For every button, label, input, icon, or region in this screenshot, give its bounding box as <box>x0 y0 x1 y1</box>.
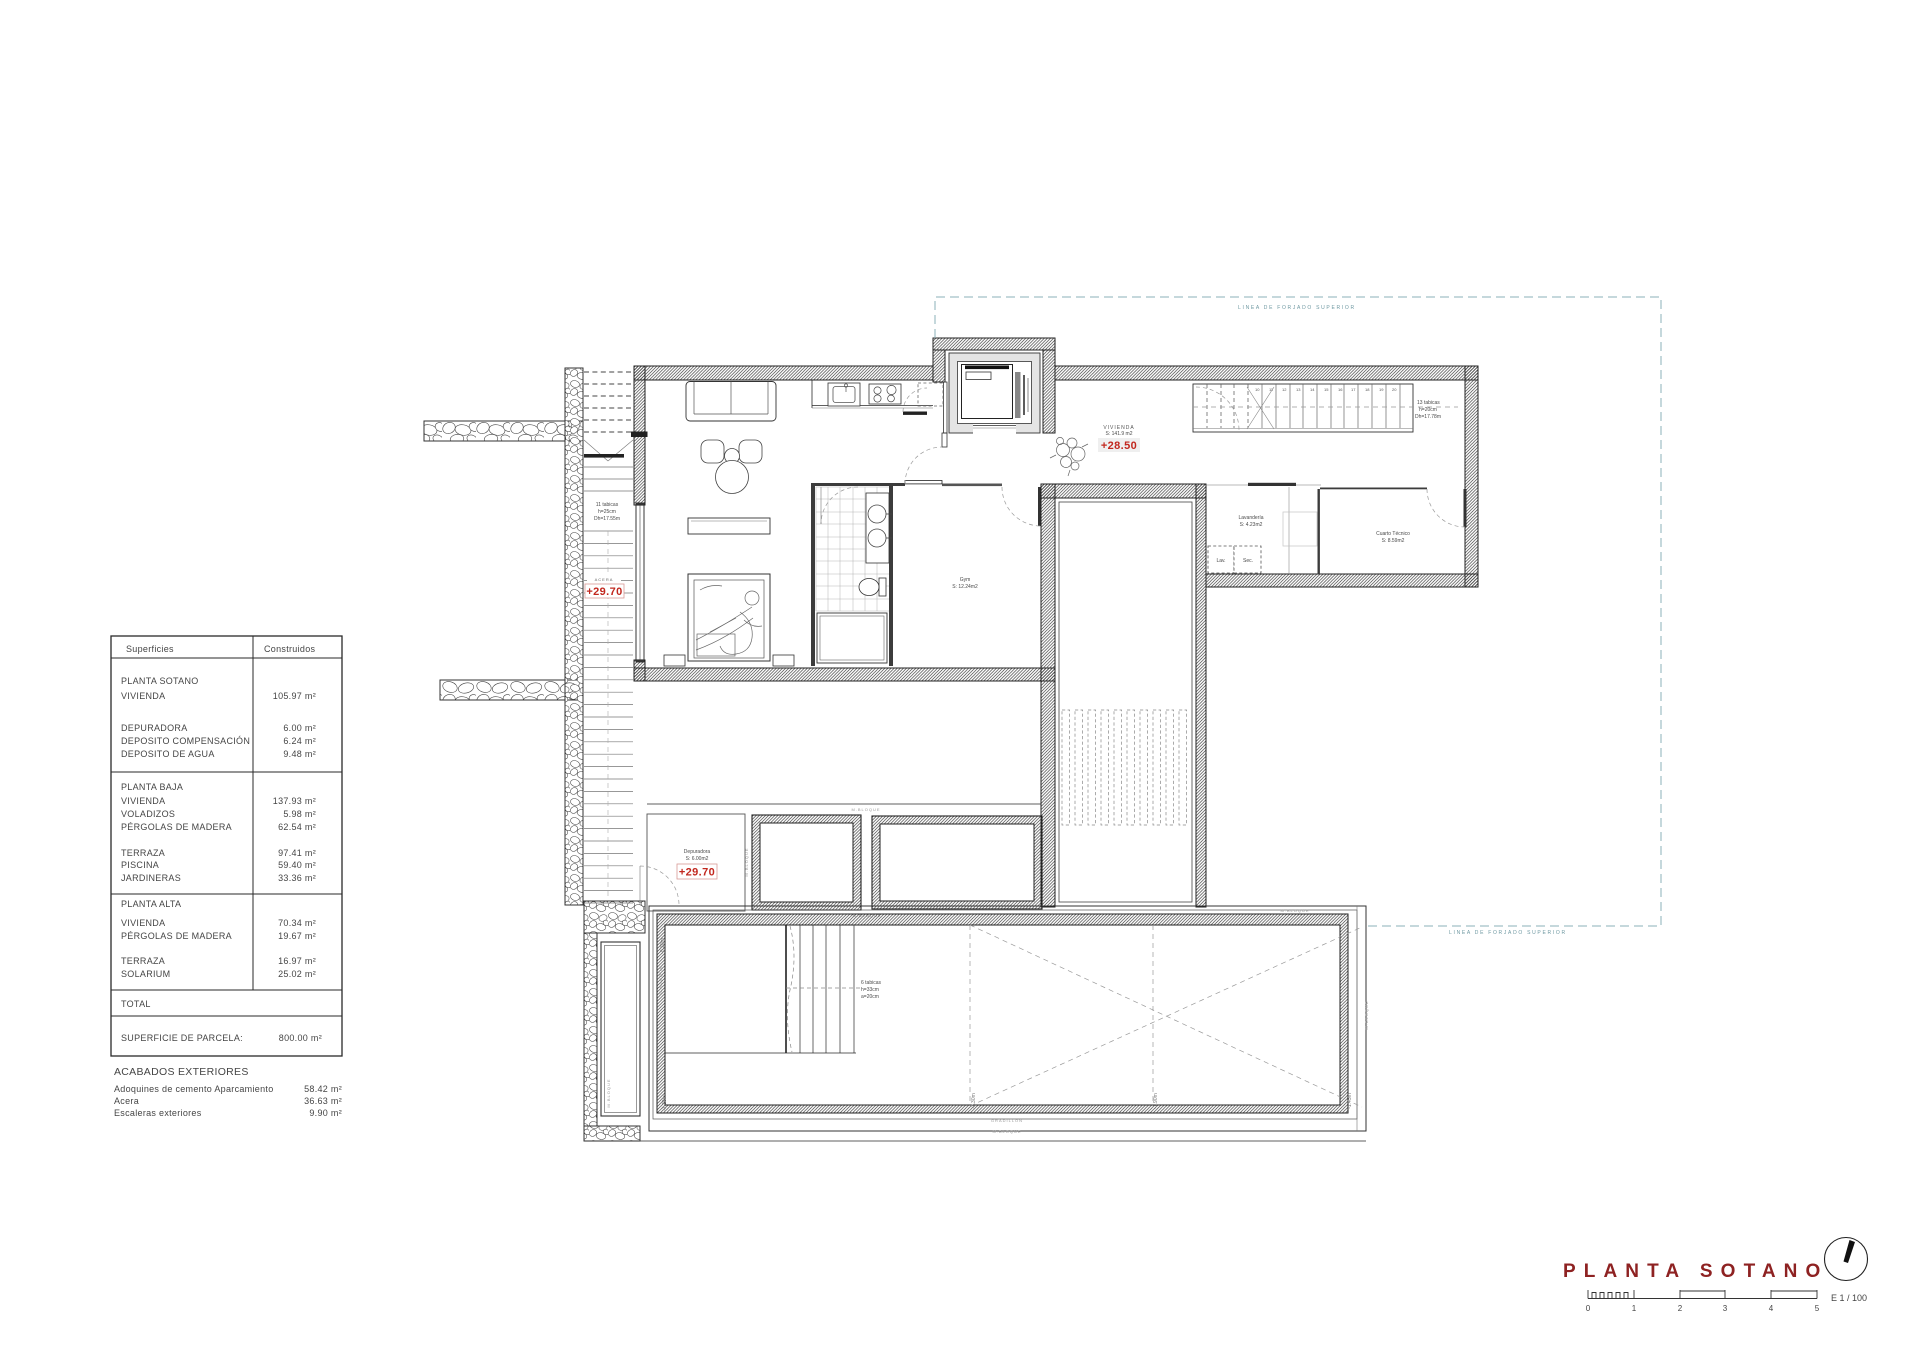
svg-text:-1.45m: -1.45m <box>1347 1093 1353 1109</box>
svg-text:15: 15 <box>1324 387 1329 392</box>
svg-text:LINEA DE FORJADO SUPERIOR: LINEA DE FORJADO SUPERIOR <box>1238 305 1356 311</box>
svg-text:Gym: Gym <box>960 577 971 583</box>
svg-text:+28.50: +28.50 <box>1101 440 1137 452</box>
svg-text:13 tabicas: 13 tabicas <box>1417 400 1440 406</box>
svg-text:S: 4.23m2: S: 4.23m2 <box>1240 522 1263 528</box>
svg-text:PLANTA SOTANO: PLANTA SOTANO <box>121 676 199 686</box>
svg-text:SUPERFICIE DE PARCELA:: SUPERFICIE DE PARCELA: <box>121 1033 243 1043</box>
svg-text:10: 10 <box>1255 387 1260 392</box>
svg-text:VIVIENDA: VIVIENDA <box>121 918 165 928</box>
svg-text:Dh=17.55m: Dh=17.55m <box>594 516 620 522</box>
svg-text:JARDINERAS: JARDINERAS <box>121 873 181 883</box>
svg-text:Lav.: Lav. <box>1216 558 1225 564</box>
svg-text:TERRAZA: TERRAZA <box>121 956 165 966</box>
svg-text:-1.20m: -1.20m <box>662 1095 668 1111</box>
svg-text:-1.90m: -1.90m <box>1153 1093 1159 1109</box>
svg-text:18: 18 <box>1365 387 1370 392</box>
svg-text:105.97 m²: 105.97 m² <box>273 691 316 701</box>
svg-text:62.54 m²: 62.54 m² <box>278 822 316 832</box>
svg-text:Dh=17.78m: Dh=17.78m <box>1415 414 1441 420</box>
svg-text:Lavandería: Lavandería <box>1238 515 1263 521</box>
svg-text:PLANTA ALTA: PLANTA ALTA <box>121 899 181 909</box>
svg-text:6.24 m²: 6.24 m² <box>283 736 316 746</box>
svg-text:137.93 m²: 137.93 m² <box>273 796 316 806</box>
svg-text:19: 19 <box>1379 387 1384 392</box>
svg-text:3: 3 <box>1723 1304 1728 1313</box>
svg-text:Depuradora: Depuradora <box>684 849 711 855</box>
svg-text:25.02 m²: 25.02 m² <box>278 969 316 979</box>
svg-text:ACERA: ACERA <box>595 577 614 582</box>
svg-text:PISCINA: PISCINA <box>121 860 159 870</box>
svg-text:ACABADOS EXTERIORES: ACABADOS EXTERIORES <box>114 1066 249 1078</box>
svg-text:16.97 m²: 16.97 m² <box>278 956 316 966</box>
svg-text:6 tabicas: 6 tabicas <box>861 980 882 986</box>
svg-text:Escaleras exteriores: Escaleras exteriores <box>114 1108 202 1118</box>
svg-text:PLANTA BAJA: PLANTA BAJA <box>121 782 183 792</box>
svg-text:PÉRGOLAS DE MADERA: PÉRGOLAS DE MADERA <box>121 822 232 832</box>
svg-text:36.63 m²: 36.63 m² <box>304 1096 342 1106</box>
svg-text:9.48 m²: 9.48 m² <box>283 749 316 759</box>
svg-text:M.BLOQUE: M.BLOQUE <box>851 807 880 812</box>
svg-text:33.36 m²: 33.36 m² <box>278 873 316 883</box>
svg-text:E 1 / 100: E 1 / 100 <box>1831 1293 1867 1303</box>
svg-text:5: 5 <box>1815 1304 1820 1313</box>
svg-text:h=20cm: h=20cm <box>1419 407 1437 413</box>
svg-text:9.90 m²: 9.90 m² <box>309 1108 342 1118</box>
svg-text:Sec.: Sec. <box>1243 558 1253 564</box>
svg-text:14: 14 <box>1310 387 1315 392</box>
svg-text:58.42 m²: 58.42 m² <box>304 1084 342 1094</box>
svg-text:S: 6.00m2: S: 6.00m2 <box>686 856 709 862</box>
svg-text:-0.30m: -0.30m <box>660 938 666 954</box>
svg-text:M.BLOQUE: M.BLOQUE <box>606 1078 611 1107</box>
svg-text:Construidos: Construidos <box>264 644 316 654</box>
svg-text:2: 2 <box>1678 1304 1683 1313</box>
svg-text:0: 0 <box>1586 1304 1591 1313</box>
svg-text:6.00 m²: 6.00 m² <box>283 723 316 733</box>
svg-text:GRADILLON: GRADILLON <box>991 1118 1023 1123</box>
svg-text:800.00 m²: 800.00 m² <box>279 1033 322 1043</box>
svg-text:19.67 m²: 19.67 m² <box>278 931 316 941</box>
svg-text:1: 1 <box>1632 1304 1637 1313</box>
svg-text:VIVIENDA: VIVIENDA <box>121 796 165 806</box>
svg-text:+29.70: +29.70 <box>679 867 715 879</box>
svg-text:h=25cm: h=25cm <box>598 509 616 515</box>
svg-text:S: 8.59m2: S: 8.59m2 <box>1382 538 1405 544</box>
svg-text:13: 13 <box>1296 387 1301 392</box>
svg-text:Acera: Acera <box>114 1096 139 1106</box>
svg-text:-1.30m: -1.30m <box>971 1093 977 1109</box>
svg-text:DEPOSITO DE AGUA: DEPOSITO DE AGUA <box>121 749 215 759</box>
svg-text:h=33cm: h=33cm <box>861 987 879 993</box>
svg-text:12: 12 <box>1282 387 1287 392</box>
svg-text:VOLADIZOS: VOLADIZOS <box>121 809 175 819</box>
svg-text:20: 20 <box>1392 387 1397 392</box>
svg-text:59.40 m²: 59.40 m² <box>278 860 316 870</box>
svg-text:11 tabicas: 11 tabicas <box>596 502 619 508</box>
svg-text:TERRAZA: TERRAZA <box>121 848 165 858</box>
svg-text:VIVIENDA: VIVIENDA <box>121 691 165 701</box>
svg-text:16: 16 <box>1338 387 1343 392</box>
svg-text:97.41 m²: 97.41 m² <box>278 848 316 858</box>
svg-text:Cuarto Técnico: Cuarto Técnico <box>1376 531 1410 537</box>
svg-text:TOTAL: TOTAL <box>121 999 151 1009</box>
svg-text:DEPOSITO COMPENSACIÓN: DEPOSITO COMPENSACIÓN <box>121 736 250 746</box>
svg-text:M.BLOQUE: M.BLOQUE <box>744 847 749 876</box>
svg-text:17: 17 <box>1351 387 1356 392</box>
svg-text:Superficies: Superficies <box>126 644 174 654</box>
svg-text:70.34 m²: 70.34 m² <box>278 918 316 928</box>
svg-text:S: 12.24m2: S: 12.24m2 <box>952 584 978 590</box>
svg-text:5.98 m²: 5.98 m² <box>283 809 316 819</box>
svg-text:PÉRGOLAS DE MADERA: PÉRGOLAS DE MADERA <box>121 931 232 941</box>
svg-text:DEPURADORA: DEPURADORA <box>121 723 188 733</box>
svg-text:a=20cm: a=20cm <box>861 994 879 1000</box>
svg-text:LINEA DE FORJADO SUPERIOR: LINEA DE FORJADO SUPERIOR <box>1449 930 1567 936</box>
svg-text:SOLARIUM: SOLARIUM <box>121 969 170 979</box>
svg-text:S: 141.9 m2: S: 141.9 m2 <box>1106 431 1133 437</box>
svg-text:PLANTA SOTANO: PLANTA SOTANO <box>1563 1261 1828 1282</box>
svg-text:M.BLOQUE: M.BLOQUE <box>992 1129 1021 1134</box>
svg-text:Adoquines de cemento Aparcamie: Adoquines de cemento Aparcamiento <box>114 1084 274 1094</box>
svg-text:M.BLOQUE: M.BLOQUE <box>658 965 663 994</box>
svg-text:+29.70: +29.70 <box>586 586 622 598</box>
svg-text:M.BLOQUE: M.BLOQUE <box>1280 908 1309 913</box>
svg-text:M.BLOQUE: M.BLOQUE <box>1364 1000 1369 1029</box>
svg-text:4: 4 <box>1769 1304 1774 1313</box>
